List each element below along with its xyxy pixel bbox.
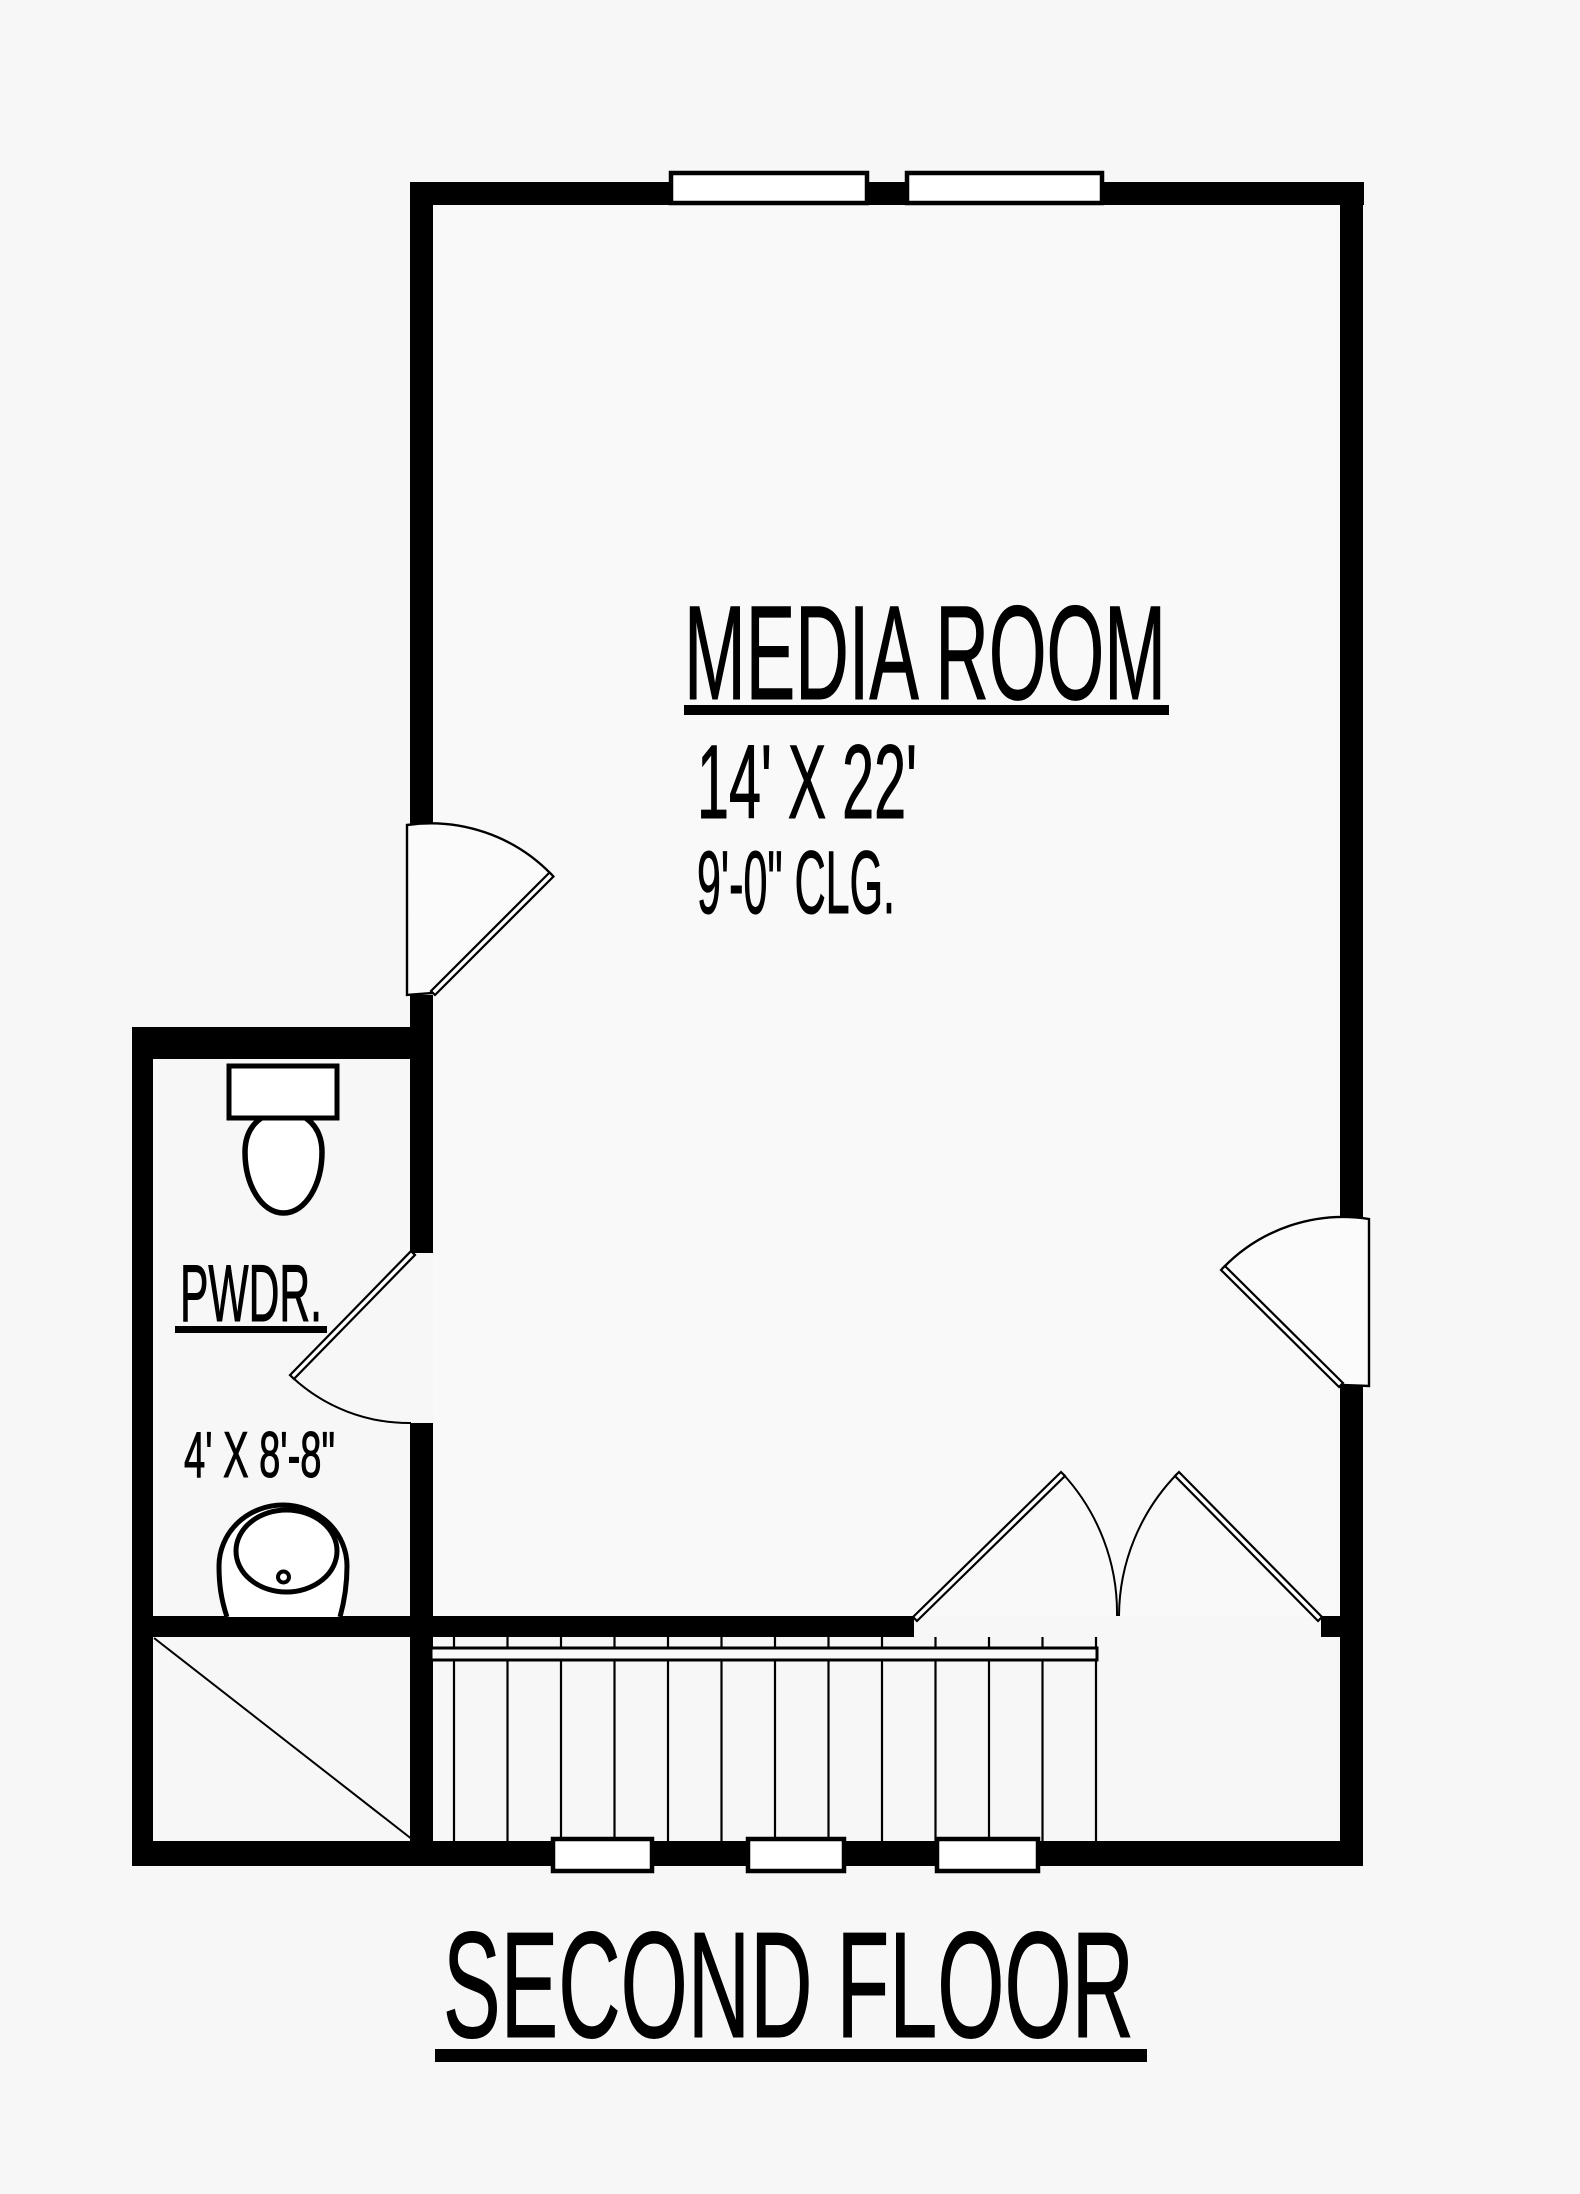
svg-text:9'-0" CLG.: 9'-0" CLG.: [697, 832, 895, 932]
svg-text:4' X 8'-8": 4' X 8'-8": [184, 1418, 335, 1491]
svg-text:SECOND FLOOR: SECOND FLOOR: [443, 1900, 1134, 2069]
svg-text:PWDR.: PWDR.: [180, 1249, 322, 1339]
svg-text:14' X 22': 14' X 22': [697, 724, 917, 841]
